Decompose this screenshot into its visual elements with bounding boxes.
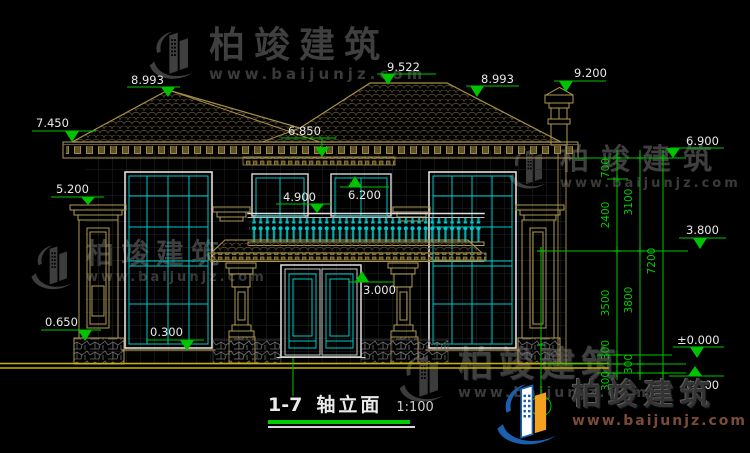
level-flag-0000: ±0.000: [673, 333, 724, 358]
svg-text:3.800: 3.800: [686, 223, 719, 237]
level-flag-8993-right: 8.993: [466, 72, 519, 97]
dim-300a: 300: [600, 340, 612, 360]
level-flag-3800: 3.800: [679, 223, 726, 249]
center-cornice: [243, 157, 395, 165]
title-scale: 1:100: [396, 400, 433, 415]
svg-text:5.200: 5.200: [56, 182, 89, 196]
svg-text:7.450: 7.450: [36, 116, 69, 130]
dim-3500: 3500: [600, 290, 612, 317]
svg-text:6.200: 6.200: [348, 188, 381, 202]
porch-roof: [209, 240, 486, 262]
drawing-title-block: 1-7 轴立面 1:100: [268, 390, 434, 428]
svg-text:8.993: 8.993: [481, 72, 514, 86]
title-axis-range: 1-7: [268, 394, 302, 416]
cad-elevation-canvas: 柏竣建筑 www.baijunjz.com 柏竣建筑 www.baijunjz.…: [0, 0, 750, 453]
svg-text:6.850: 6.850: [288, 124, 321, 138]
level-flag-6900: 6.900: [666, 134, 724, 158]
svg-text:3.000: 3.000: [363, 283, 396, 297]
dim-7200: 7200: [646, 248, 658, 275]
title-underline-white: [268, 426, 415, 428]
dim-3800: 3800: [623, 287, 635, 314]
level-flag-9522: 9.522: [377, 60, 436, 85]
svg-text:8.993: 8.993: [131, 73, 164, 87]
svg-text:6.900: 6.900: [686, 134, 719, 148]
svg-text:9.522: 9.522: [387, 60, 420, 74]
svg-text:±0.000: ±0.000: [677, 333, 720, 347]
chain-values: 700 2400 3500 300 300 3100 3800 300 7200: [600, 158, 658, 391]
dim-300b: 300: [600, 371, 612, 391]
level-flag-minus0300: -0.300: [669, 366, 724, 392]
elevation-drawing: 700 2400 3500 300 300 3100 3800 300 7200…: [0, 0, 750, 453]
dim-300c: 300: [623, 354, 635, 374]
dim-2400: 2400: [600, 202, 612, 229]
title-underline-green: [268, 420, 410, 424]
svg-text:0.300: 0.300: [150, 325, 183, 339]
svg-text:0.650: 0.650: [45, 315, 78, 329]
svg-text:9.200: 9.200: [574, 66, 607, 80]
dim-3100: 3100: [623, 189, 635, 216]
svg-text:4.900: 4.900: [283, 190, 316, 204]
ground-line: [0, 364, 608, 369]
dim-700: 700: [600, 158, 612, 178]
level-flag-9200: 9.200: [554, 66, 607, 92]
axis-bubble: [531, 396, 551, 416]
title-name: 轴立面: [316, 390, 382, 417]
svg-text:-0.300: -0.300: [682, 378, 719, 392]
